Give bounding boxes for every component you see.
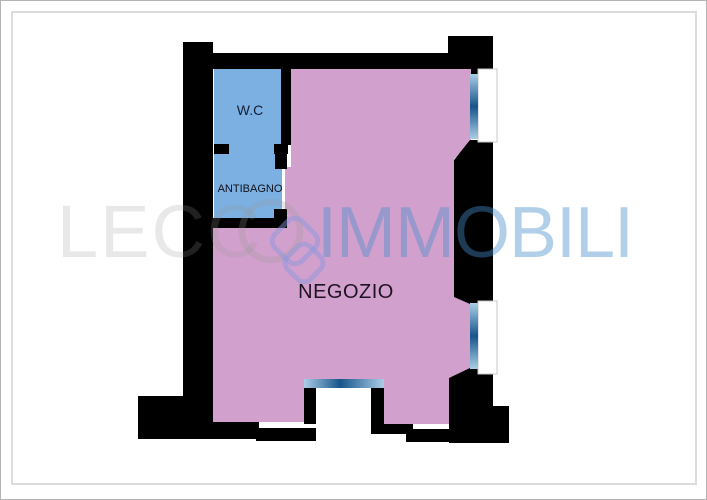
- wall-antibagno-bottom: [213, 218, 287, 228]
- floor-plan: NEGOZIO W.C ANTIBAGNO: [1, 1, 707, 500]
- wall-bar-right-of-door: [371, 424, 413, 434]
- door-jamb-right: [371, 388, 384, 424]
- wall-left: [183, 42, 213, 439]
- entrance-sill-strip: [304, 379, 384, 388]
- window-upper-glass-strip: [470, 74, 478, 139]
- wall-divider-left-stub: [214, 144, 229, 154]
- wall-antibagno-right: [275, 144, 287, 169]
- wall-wc-right: [281, 69, 291, 145]
- wall-top: [213, 53, 451, 69]
- window-upper-frame: [478, 69, 497, 142]
- wall-block-bottom-left: [138, 396, 213, 439]
- room-label-antibagno: ANTIBAGNO: [218, 183, 283, 195]
- wall-corner-top-right: [448, 36, 493, 69]
- room-antibagno-floor: [214, 144, 282, 219]
- room-label-negozio: NEGOZIO: [298, 281, 394, 303]
- window-lower-frame: [478, 301, 497, 374]
- wall-right-middle: [454, 140, 493, 304]
- wall-bar-left-of-door: [213, 422, 259, 439]
- room-label-wc: W.C: [237, 102, 263, 118]
- wall-step-bottom-right: [406, 429, 466, 442]
- door-jamb-left: [304, 388, 316, 424]
- window-lower-glass-strip: [470, 303, 478, 369]
- wall-antibagno-door-jamb: [274, 209, 287, 219]
- wall-step-bottom-left: [256, 428, 316, 441]
- page: NEGOZIO W.C ANTIBAGNO LECC IMMOBILI: [0, 0, 707, 500]
